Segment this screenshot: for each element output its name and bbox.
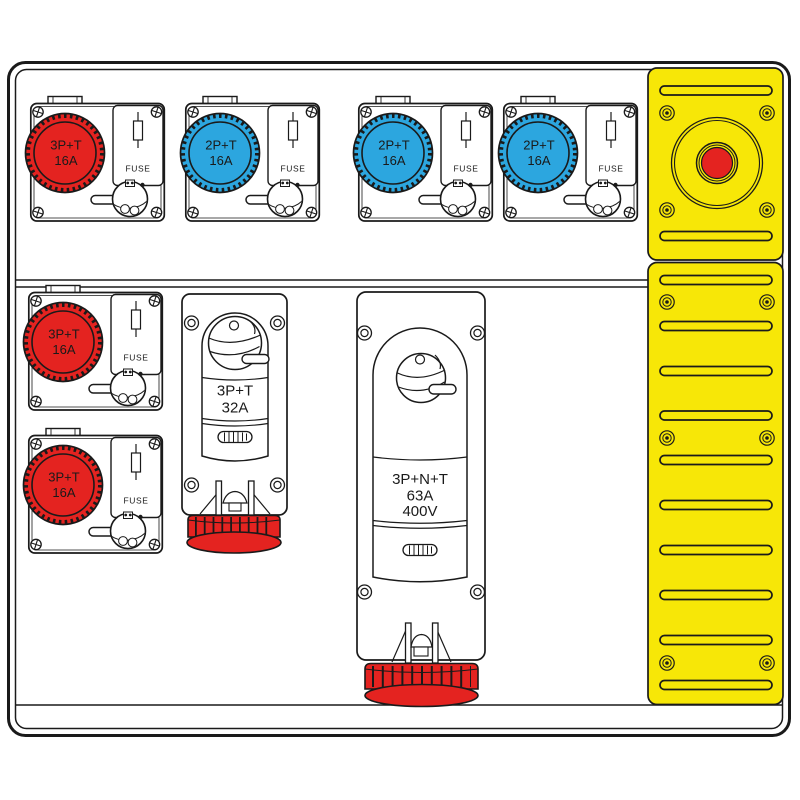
screw-cap-red xyxy=(365,664,478,707)
socket-label: 3P+T xyxy=(217,383,253,400)
socket-unit-blue-16a-top-1: 2P+T 16A FUSE xyxy=(175,95,325,225)
socket-unit-red-16a-top: 3P+T 16A FUSE xyxy=(20,95,170,225)
interlocked-socket-63a: 3P+N+T 63A 400V xyxy=(350,285,495,717)
distribution-board-diagram: 3P+T 16A FUSE 2P+T 16A FUSE 2P+T 16A FUS… xyxy=(0,0,800,800)
socket-voltage: 400V xyxy=(402,503,437,520)
socket-rating: 32A xyxy=(222,400,249,417)
panel-bottom-section xyxy=(648,263,783,705)
fuse-label: FUSE xyxy=(123,496,148,506)
emergency-stop-red-cap xyxy=(702,148,733,179)
socket-rating: 63A xyxy=(407,488,434,505)
socket-label: 3P+T xyxy=(48,327,79,342)
socket-label: 2P+T xyxy=(523,138,554,153)
socket-unit-red-16a-left-1: 3P+T 16A FUSE xyxy=(18,284,168,414)
socket-unit-red-16a-left-2: 3P+T 16A FUSE xyxy=(18,427,168,557)
socket-rating: 16A xyxy=(52,342,75,357)
socket-rating: 16A xyxy=(52,485,75,500)
socket-label: 2P+T xyxy=(378,138,409,153)
socket-unit-blue-16a-top-3: 2P+T 16A FUSE xyxy=(493,95,643,225)
socket-label: 2P+T xyxy=(205,138,236,153)
interlocked-socket-32a: 3P+T 32A xyxy=(170,285,295,570)
fuse-label: FUSE xyxy=(453,164,478,174)
socket-rating: 16A xyxy=(54,153,77,168)
socket-rating: 16A xyxy=(382,153,405,168)
socket-unit-blue-16a-top-2: 2P+T 16A FUSE xyxy=(348,95,498,225)
switch-lever xyxy=(429,385,456,395)
socket-rating: 16A xyxy=(527,153,550,168)
latch-prong xyxy=(433,623,439,663)
socket-label: 3P+T xyxy=(50,138,81,153)
fuse-label: FUSE xyxy=(598,164,623,174)
socket-label: 3P+N+T xyxy=(392,471,448,488)
socket-rating: 16A xyxy=(209,153,232,168)
screw-cap-red xyxy=(187,516,281,554)
latch-prong xyxy=(216,481,222,515)
fuse-label: FUSE xyxy=(123,353,148,363)
switch-lever xyxy=(242,355,269,364)
socket-label: 3P+T xyxy=(48,470,79,485)
latch-prong xyxy=(406,623,412,663)
latch-prong xyxy=(249,481,255,515)
fuse-label: FUSE xyxy=(125,164,150,174)
emergency-stop-panel xyxy=(645,65,787,710)
fuse-label: FUSE xyxy=(280,164,305,174)
